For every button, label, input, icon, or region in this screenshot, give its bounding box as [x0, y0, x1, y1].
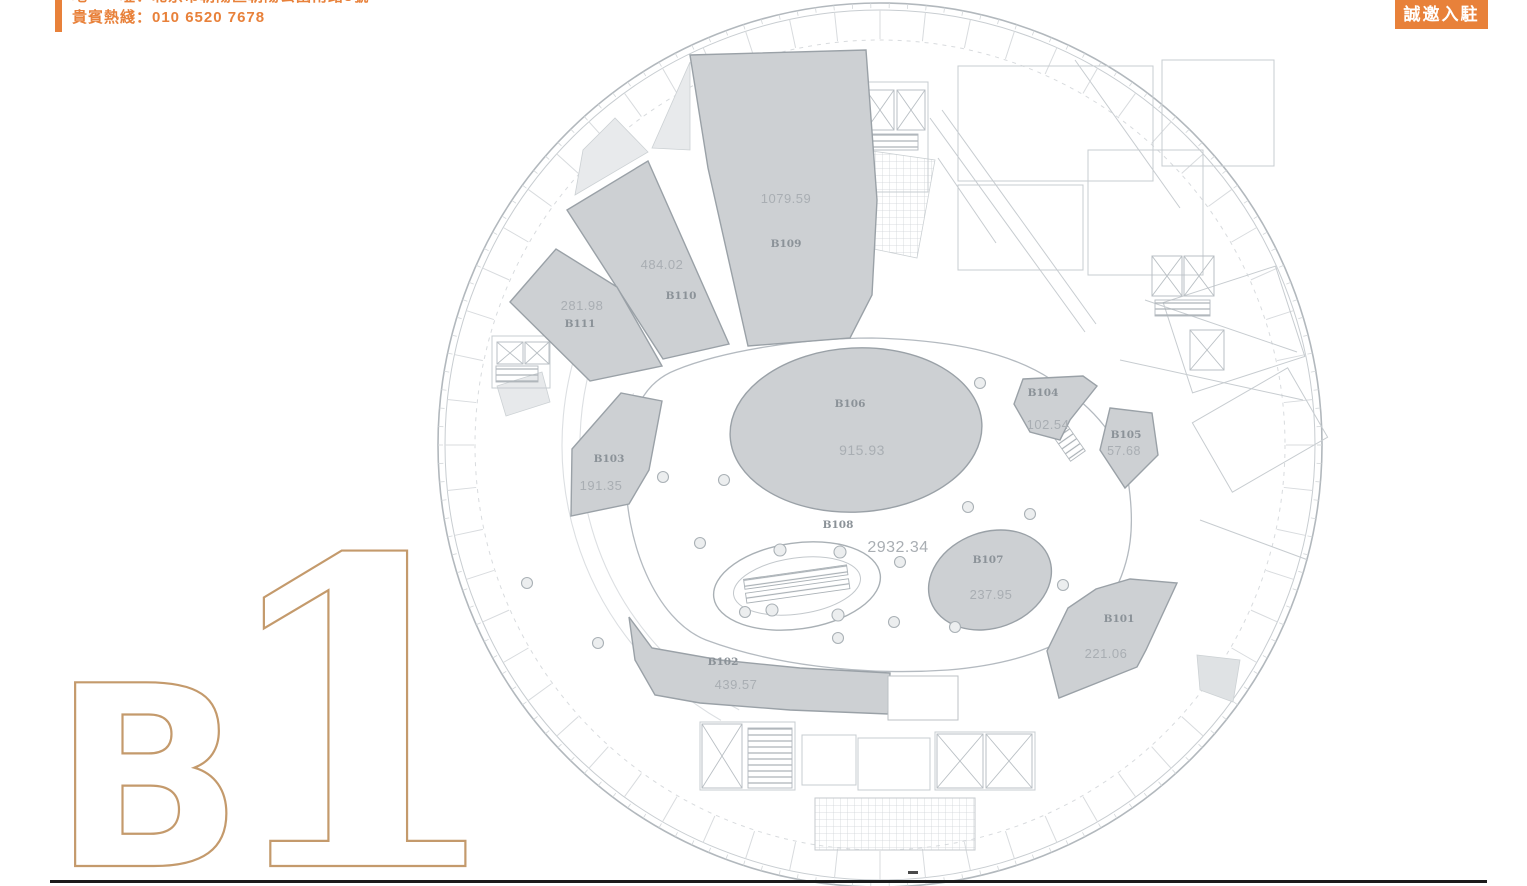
unit-id-label-B108: B108 — [823, 519, 854, 531]
unit-id-label-B111: B111 — [565, 318, 596, 330]
footer-rule — [50, 880, 1487, 883]
unit-id-label-B109: B109 — [771, 238, 802, 250]
unit-area-label-B104: 102.54 — [1027, 417, 1070, 432]
unit-id-label-B106: B106 — [835, 398, 866, 410]
unit-area-label-B110: 484.02 — [641, 257, 684, 272]
floor-plan-svg: B1091079.59B110484.02B111281.98B103191.3… — [0, 0, 1527, 886]
floor-label-char-1: 1 — [212, 468, 508, 886]
unit-id-label-B104: B104 — [1028, 387, 1059, 399]
unit-area-label-B102: 439.57 — [715, 677, 758, 692]
unit-id-label-B101: B101 — [1104, 613, 1135, 625]
unit-id-label-B110: B110 — [666, 290, 697, 302]
unit-area-label-B107: 237.95 — [970, 587, 1013, 602]
unit-area-label-B103: 191.35 — [580, 478, 623, 493]
unit-id-label-B102: B102 — [708, 656, 739, 668]
unit-id-label-B103: B103 — [594, 453, 625, 465]
unit-id-label-B105: B105 — [1111, 429, 1142, 441]
unit-area-label-B105: 57.68 — [1107, 444, 1141, 458]
floor-label: B1 — [52, 468, 508, 886]
unit-area-label-B101: 221.06 — [1085, 646, 1128, 661]
unit-area-label-B111: 281.98 — [561, 298, 604, 313]
unit-id-label-B107: B107 — [973, 554, 1004, 566]
page-dash — [908, 871, 918, 874]
unit-area-label-B106: 915.93 — [839, 442, 885, 458]
unit-area-label-B109: 1079.59 — [761, 191, 812, 206]
unit-area-label-B108: 2932.34 — [867, 539, 928, 556]
